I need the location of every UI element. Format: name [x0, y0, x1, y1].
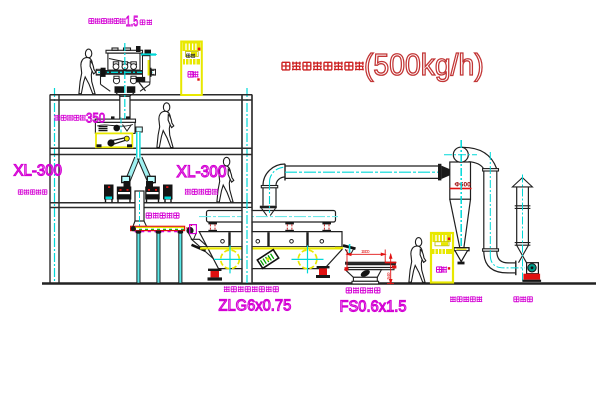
svg-text:FS0.6x1.5: FS0.6x1.5	[340, 298, 407, 316]
svg-text:ZLG6x0.75: ZLG6x0.75	[219, 297, 292, 315]
svg-text:(500kg/h): (500kg/h)	[364, 48, 484, 82]
svg-text:XL-300: XL-300	[13, 162, 62, 180]
svg-text:XL-300: XL-300	[177, 164, 227, 182]
svg-text:1500: 1500	[361, 249, 370, 255]
svg-text:Φ600: Φ600	[455, 181, 472, 188]
svg-text:350: 350	[86, 109, 105, 125]
svg-text:540: 540	[386, 272, 392, 279]
svg-text:1.5: 1.5	[126, 13, 139, 30]
